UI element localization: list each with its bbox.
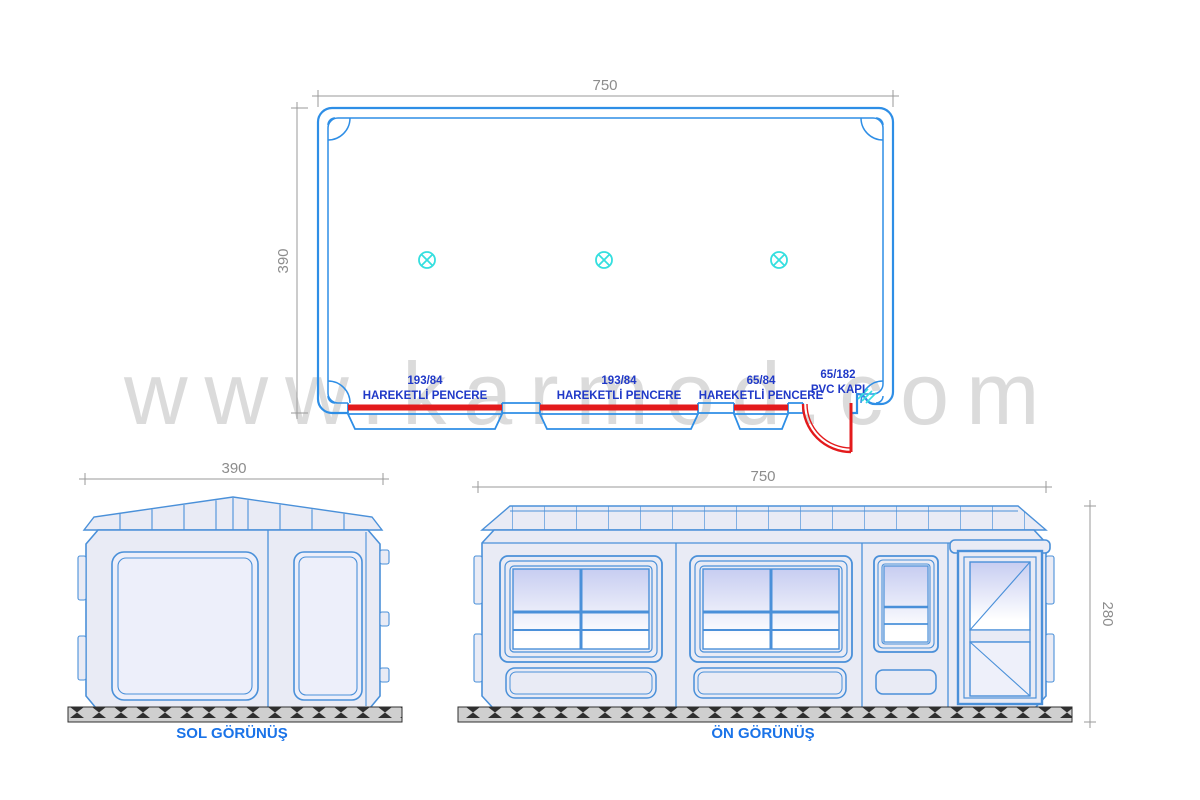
door-label: PVC KAPI [811, 384, 865, 396]
window3-size: 65/84 [747, 375, 776, 387]
front-door [950, 540, 1050, 704]
front-view-title: ÖN GÖRÜNÜŞ [711, 725, 814, 742]
window2-label: HAREKETLİ PENCERE [557, 389, 682, 402]
front-width-dim-text: 750 [750, 468, 775, 485]
front-height-dim-text: 280 [1099, 601, 1116, 626]
left-width-dim-text: 390 [221, 460, 246, 477]
cabin-drawing: 750 390 [0, 0, 1200, 800]
window-sills [348, 414, 788, 429]
plan-depth-dim-text: 390 [275, 248, 292, 273]
front-roof-ribs [482, 506, 1046, 530]
left-ground-hatch [68, 707, 402, 722]
front-height-dimension [1084, 500, 1096, 728]
front-view: 750 [458, 468, 1116, 742]
window-opening-2 [540, 405, 698, 411]
left-wall-panels [112, 552, 362, 700]
lamp-icon [419, 252, 435, 268]
lamp-icon [596, 252, 612, 268]
window-opening-1 [348, 405, 502, 411]
window2-size: 193/84 [601, 375, 637, 387]
window-opening-3 [734, 405, 788, 411]
technical-drawing-sheet: www.karmod.com [0, 0, 1200, 800]
front-window-small [874, 556, 938, 652]
window3-label: HAREKETLİ PENCERE [699, 389, 824, 402]
lamp-icons [419, 252, 787, 268]
door-swing [803, 403, 851, 452]
door-size: 65/182 [820, 369, 855, 381]
window1-label: HAREKETLİ PENCERE [363, 389, 488, 402]
front-ground-hatch [458, 707, 1072, 722]
left-view: 390 [68, 460, 402, 742]
lamp-icon [771, 252, 787, 268]
front-window-2 [690, 556, 852, 662]
plan-view: 750 390 [275, 77, 899, 452]
plan-depth-dimension [291, 102, 308, 419]
front-window-1 [500, 556, 662, 662]
window1-size: 193/84 [407, 375, 443, 387]
plan-opening-labels: 193/84 HAREKETLİ PENCERE 193/84 HAREKETL… [363, 369, 865, 402]
left-view-title: SOL GÖRÜNÜŞ [176, 725, 287, 742]
plan-width-dim-text: 750 [592, 77, 617, 94]
